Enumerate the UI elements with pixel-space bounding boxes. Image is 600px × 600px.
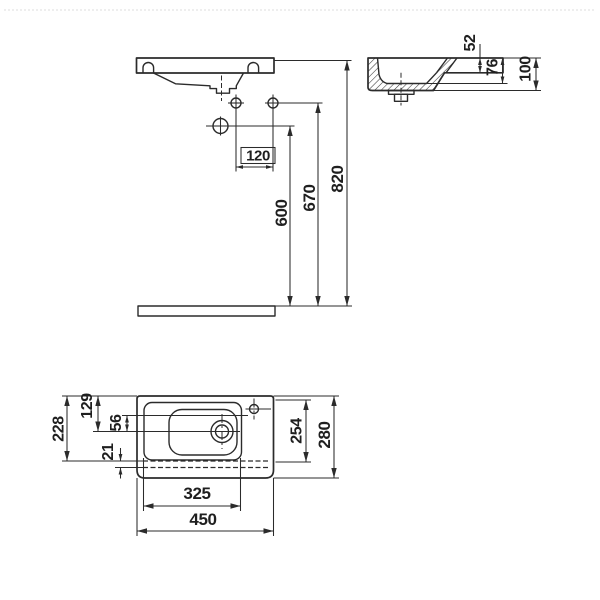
- dim-label-52: 52: [462, 34, 479, 51]
- washbasin-technical-drawing: 120 600 670 820: [0, 0, 600, 600]
- dim-label-100: 100: [518, 56, 535, 82]
- dim-label-76: 76: [485, 59, 502, 76]
- dim-label-56: 56: [108, 414, 125, 431]
- dim-label-21: 21: [100, 443, 117, 460]
- drawing-canvas: 120 600 670 820: [0, 0, 600, 600]
- dim-faucet-to-drain: 56: [108, 414, 127, 431]
- dim-label-600: 600: [272, 199, 291, 226]
- dim-label-280: 280: [315, 421, 334, 448]
- dim-label-120: 120: [246, 148, 270, 165]
- dim-label-254: 254: [289, 418, 306, 444]
- dim-label-325: 325: [183, 484, 210, 503]
- dim-label-670: 670: [300, 184, 319, 211]
- dim-label-820: 820: [328, 165, 347, 192]
- dim-label-450: 450: [189, 510, 216, 529]
- dim-label-129: 129: [79, 393, 96, 419]
- dim-label-228: 228: [51, 416, 68, 442]
